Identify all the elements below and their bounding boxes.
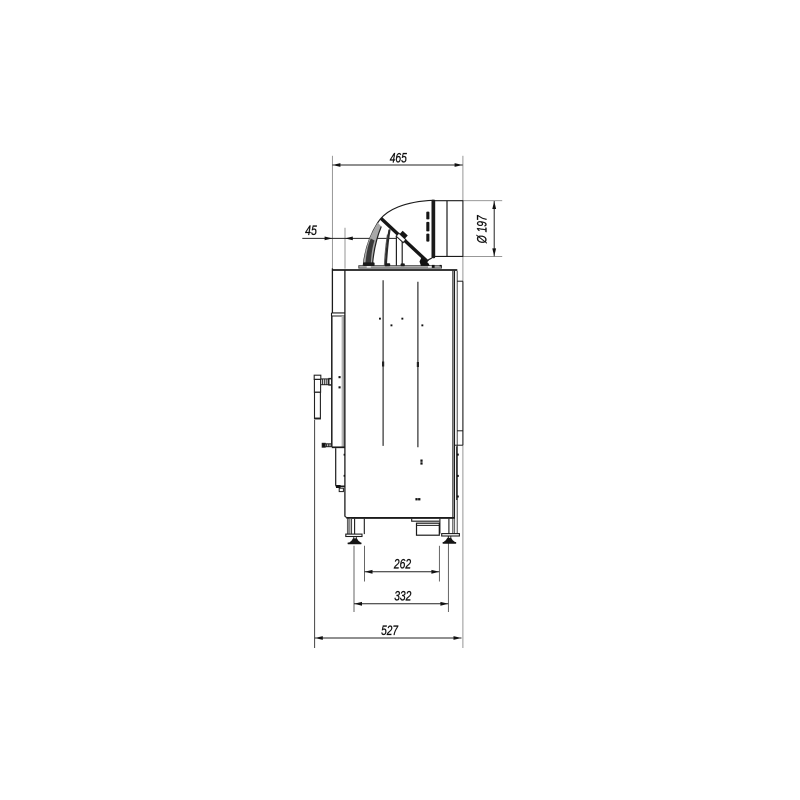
svg-text:332: 332	[394, 588, 411, 604]
svg-text:527: 527	[381, 622, 399, 638]
svg-text:465: 465	[390, 149, 407, 165]
svg-text:Ø 197: Ø 197	[473, 214, 489, 244]
svg-text:45: 45	[305, 222, 317, 238]
svg-text:262: 262	[393, 556, 411, 572]
